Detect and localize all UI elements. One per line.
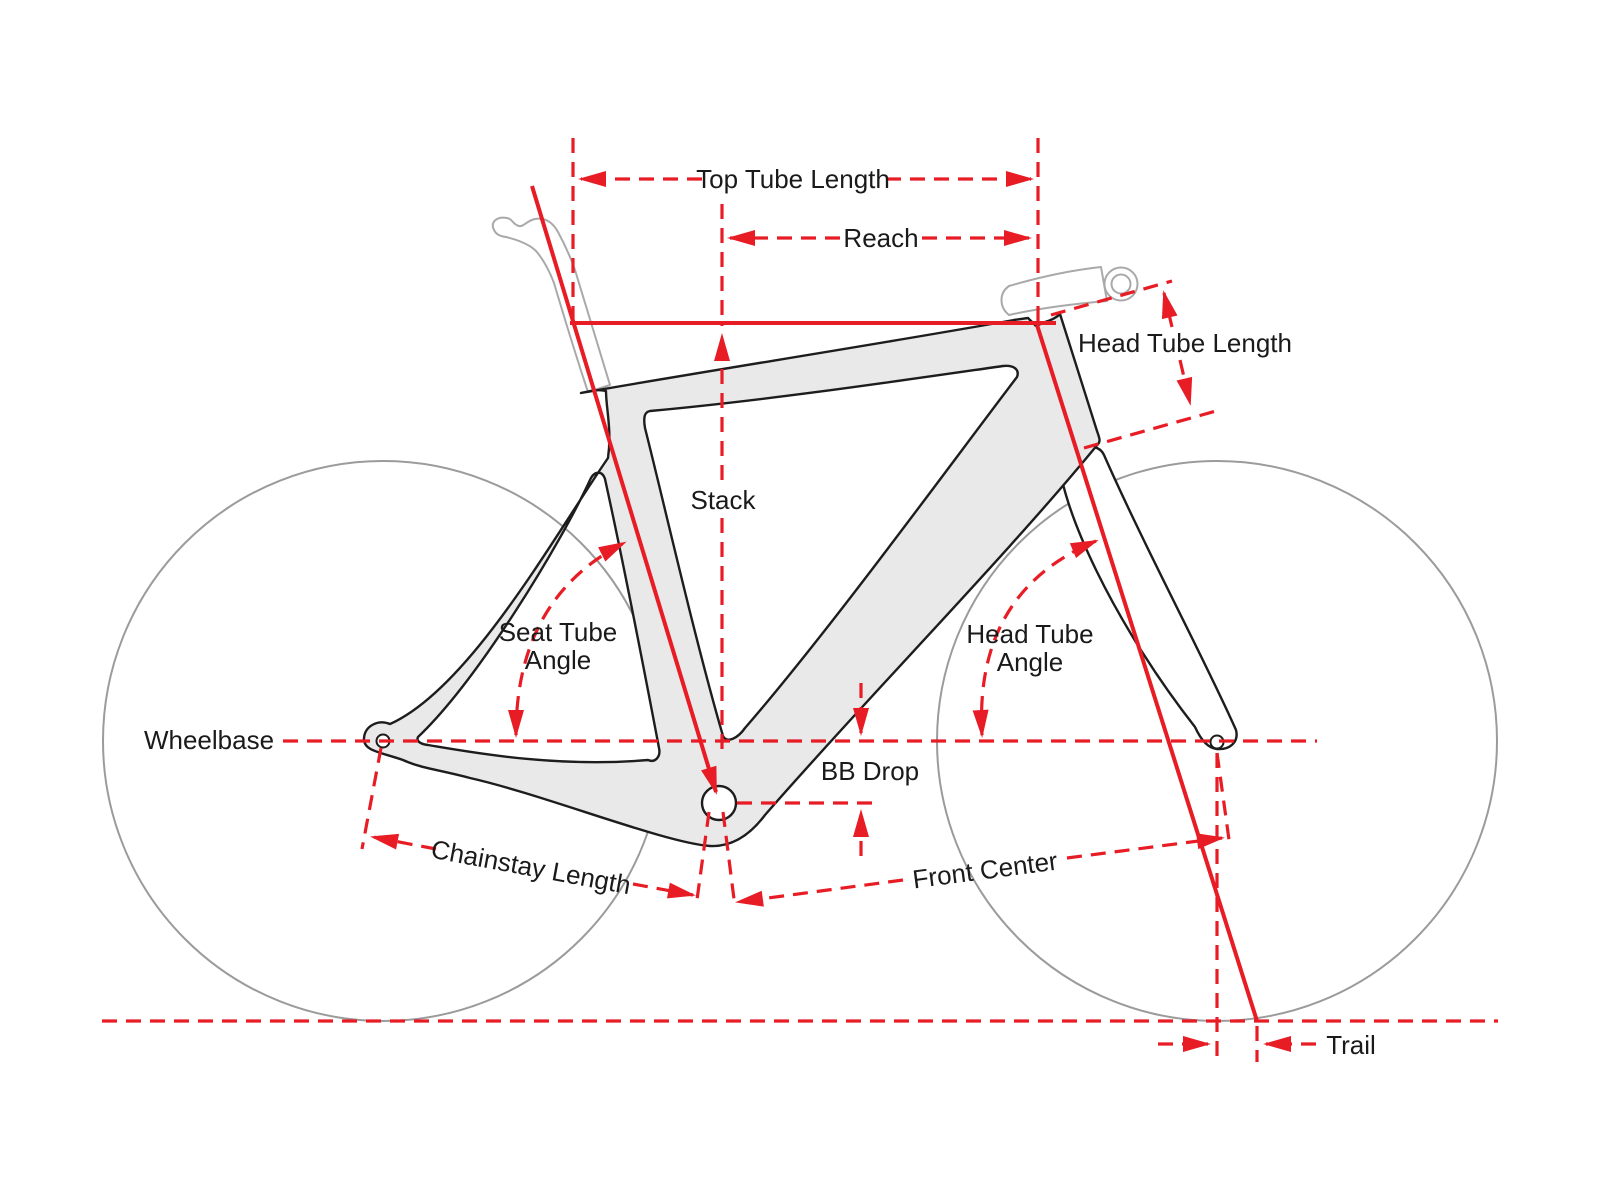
arrow-left [373,837,436,849]
seat-tube-axis-line [532,186,716,792]
tick-rear-dropout [362,748,381,849]
bb-drop-label: BB Drop [821,756,919,786]
extension-line-bottom [1084,411,1216,448]
stem [1002,267,1108,315]
frame [364,314,1100,846]
head-tube-angle-label-line1: Head Tube [966,619,1093,649]
trail-label: Trail [1326,1030,1376,1060]
wheelbase-label: Wheelbase [144,725,274,755]
seat-tube-angle-label-line2: Angle [525,645,592,675]
top-tube-length-label: Top Tube Length [696,164,890,194]
head-tube-length-label: Head Tube Length [1078,328,1292,358]
steering-axis-line [1037,325,1257,1021]
bike-geometry-diagram: Top Tube Length Reach Stack Head Tube Le… [0,0,1600,1200]
reach-label: Reach [843,223,918,253]
arrow-right [633,884,693,895]
arrow-down [1180,360,1190,403]
stack-label: Stack [690,485,756,515]
head-tube-angle-label-line2: Angle [997,647,1064,677]
reach-dimension: Reach [722,204,1029,326]
chainstay-length-label: Chainstay Length [429,834,633,900]
tick-front-axle [1217,753,1230,847]
arrow-right [1067,838,1222,858]
seat-tube-angle-label-line1: Seat Tube [499,617,618,647]
fork [1058,446,1237,749]
stem-and-handlebar [1002,267,1138,315]
front-center-label: Front Center [911,846,1060,895]
handlebar [1112,275,1131,294]
top-tube-length-dimension: Top Tube Length [573,138,1038,325]
arrow-up [1164,293,1172,327]
arrow-left [738,880,903,902]
